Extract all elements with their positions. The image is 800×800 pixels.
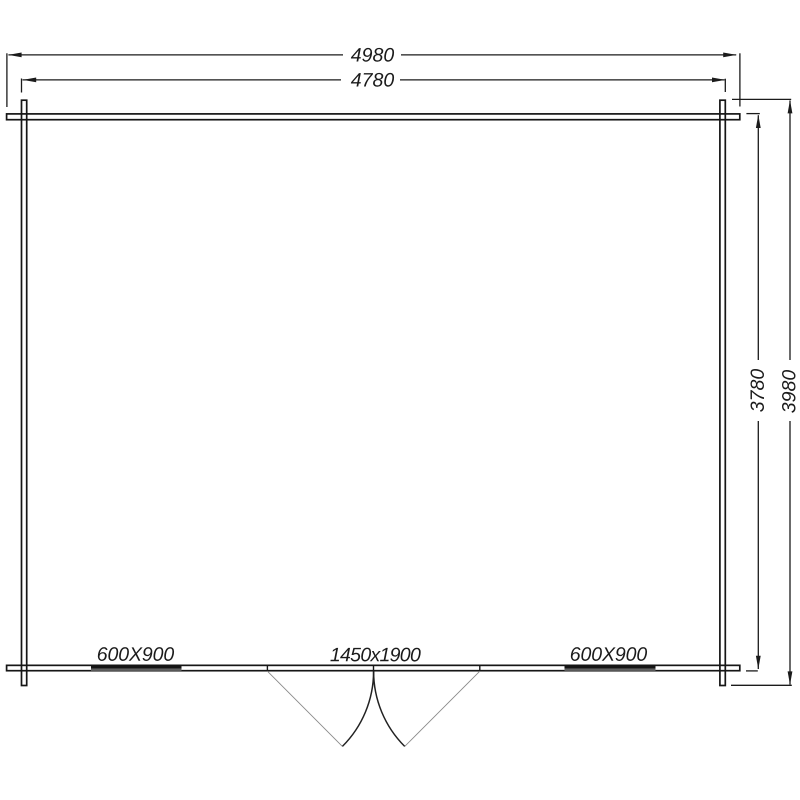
svg-text:600X900: 600X900: [570, 644, 648, 666]
svg-text:4780: 4780: [351, 69, 395, 91]
svg-text:1450x1900: 1450x1900: [330, 644, 421, 666]
svg-text:600X900: 600X900: [97, 644, 175, 666]
svg-text:3980: 3980: [779, 370, 800, 414]
svg-text:4980: 4980: [351, 44, 395, 66]
svg-text:3780: 3780: [747, 369, 769, 413]
